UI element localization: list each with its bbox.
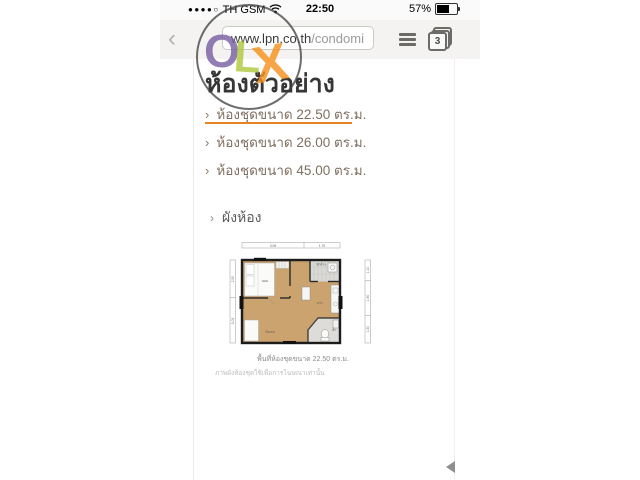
room-size-link-2600[interactable]: ›ห้องชุดขนาด 26.00 ตร.ม. bbox=[205, 131, 366, 153]
dimension-bar-left: 2.50 3.05 bbox=[230, 260, 236, 343]
browser-toolbar: ‹ www.lpn.co.th/condomi 3 bbox=[160, 20, 480, 60]
svg-text:นั่งเล่น: นั่งเล่น bbox=[265, 329, 275, 334]
svg-text:3.05: 3.05 bbox=[231, 318, 235, 325]
dimension-bar-right: 1.10 1.90 1.50 bbox=[365, 260, 371, 343]
status-right: 57% bbox=[409, 3, 458, 15]
content-left-border bbox=[193, 59, 194, 480]
content-right-border bbox=[454, 59, 455, 480]
svg-text:1.90: 1.90 bbox=[366, 295, 370, 302]
page-title: ห้องตัวอย่าง bbox=[205, 64, 335, 104]
url-host-text: www.lpn.co.th bbox=[231, 31, 311, 46]
floorplan-section-link[interactable]: ›ผังห้อง bbox=[210, 207, 262, 229]
floorplan-caption: พื้นที่ห้องชุดขนาด 22.50 ตร.ม. bbox=[220, 354, 386, 365]
svg-text:ซักล้าง: ซักล้าง bbox=[316, 263, 326, 267]
svg-text:ครัว: ครัว bbox=[317, 301, 323, 305]
battery-icon bbox=[435, 3, 458, 15]
tab-count-badge: 3 bbox=[428, 32, 447, 51]
tab-switcher-button[interactable]: 3 bbox=[428, 27, 452, 51]
battery-percent-label: 57% bbox=[409, 3, 431, 15]
menu-icon[interactable] bbox=[399, 33, 416, 46]
chevron-right-icon: › bbox=[210, 211, 214, 225]
url-path-text: /condomi bbox=[311, 31, 364, 46]
carousel-prev-arrow[interactable] bbox=[446, 461, 455, 473]
floorplan-disclaimer: ภาพผังห้องชุดใช้เพื่อการโฆษณาเท่านั้น bbox=[215, 368, 325, 378]
dimension-bar-top: 3.05 1.75 bbox=[242, 243, 340, 249]
room-size-link-4500[interactable]: ›ห้องชุดขนาด 45.00 ตร.ม. bbox=[205, 159, 366, 181]
room-size-label: ห้องชุดขนาด 26.00 ตร.ม. bbox=[216, 135, 366, 150]
svg-text:1.50: 1.50 bbox=[366, 326, 370, 333]
chevron-right-icon: › bbox=[205, 135, 209, 150]
room-size-label: ห้องชุดขนาด 45.00 ตร.ม. bbox=[216, 163, 366, 178]
status-bar: ●●●●○ TH GSM 22:50 57% bbox=[160, 0, 480, 20]
room-size-label: ห้องชุดขนาด 22.50 ตร.ม. bbox=[216, 107, 366, 122]
svg-text:2.50: 2.50 bbox=[231, 276, 235, 283]
url-address-bar[interactable]: www.lpn.co.th/condomi bbox=[222, 26, 374, 50]
svg-text:นอน: นอน bbox=[262, 279, 269, 283]
web-page-content: ห้องตัวอย่าง ›ห้องชุดขนาด 22.50 ตร.ม. ›ห… bbox=[160, 59, 480, 480]
svg-text:1.10: 1.10 bbox=[366, 267, 370, 274]
floorplan-image: 3.05 1.75 2.50 3.05 1.10 1.90 1 bbox=[228, 240, 378, 352]
chevron-right-icon: › bbox=[205, 163, 209, 178]
svg-text:น้ำ: น้ำ bbox=[332, 327, 336, 332]
balcony-area: ซักล้าง bbox=[310, 260, 340, 282]
phone-screenshot: ●●●●○ TH GSM 22:50 57% ‹ www.lpn.co.th/c… bbox=[160, 0, 480, 480]
back-button[interactable]: ‹ bbox=[168, 25, 176, 53]
svg-text:3.05: 3.05 bbox=[270, 244, 277, 248]
active-item-underline bbox=[205, 122, 352, 124]
svg-text:1.75: 1.75 bbox=[319, 244, 326, 248]
chevron-right-icon: › bbox=[205, 107, 209, 122]
floorplan-section-label: ผังห้อง bbox=[222, 209, 262, 225]
